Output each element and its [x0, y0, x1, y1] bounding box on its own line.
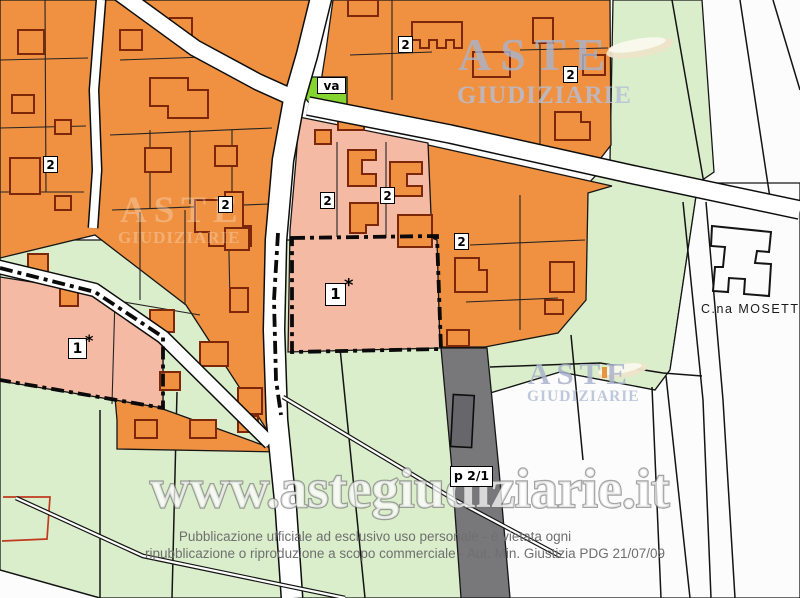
subject-parcel-star: * — [344, 277, 353, 295]
map-drawing: ASTE GIUDIZIARIE ASTE GIUDIZIARIE ASTE G… — [0, 0, 800, 598]
zone-label-2-a: 2 — [43, 156, 58, 173]
va-parcel-label: va — [317, 77, 346, 94]
strip-parcel-label: p 2/1 — [450, 466, 493, 487]
locality-label: C.na MOSETT — [701, 302, 799, 316]
watermark-aste-mid: ASTE — [528, 356, 633, 391]
watermark-aste-top: ASTE — [458, 29, 614, 80]
subject-parcel-star-west: * — [85, 333, 93, 349]
zone-label-2-g: 2 — [454, 233, 469, 250]
watermark-giudiziarie-mid: GIUDIZIARIE — [527, 388, 640, 405]
zone-label-2-e: 2 — [398, 36, 413, 53]
watermark-logo-mid: ASTE GIUDIZIARIE — [527, 356, 649, 405]
watermark-giudiziarie-faint: GIUDIZIARIE — [118, 228, 240, 247]
subject-parcel-label: 1 — [325, 283, 346, 306]
watermark-url: www.astegiudiziarie.it — [150, 458, 670, 519]
cadastral-map-canvas: ASTE GIUDIZIARIE ASTE GIUDIZIARIE ASTE G… — [0, 0, 800, 598]
strip-building — [451, 395, 475, 448]
zone-label-2-f: 2 — [563, 66, 578, 83]
zone-label-2-d: 2 — [380, 187, 395, 204]
disclaimer: Pubblicazione ufficiale ad esclusivo uso… — [0, 528, 800, 562]
disclaimer-line1: Pubblicazione ufficiale ad esclusivo uso… — [0, 528, 775, 545]
zone-label-2-b: 2 — [218, 196, 233, 213]
zone-label-2-c: 2 — [320, 192, 335, 209]
disclaimer-line2: ripubblicazione o riproduzione a scopo c… — [5, 545, 800, 562]
watermark-giudiziarie-top: GIUDIZIARIE — [457, 82, 632, 109]
